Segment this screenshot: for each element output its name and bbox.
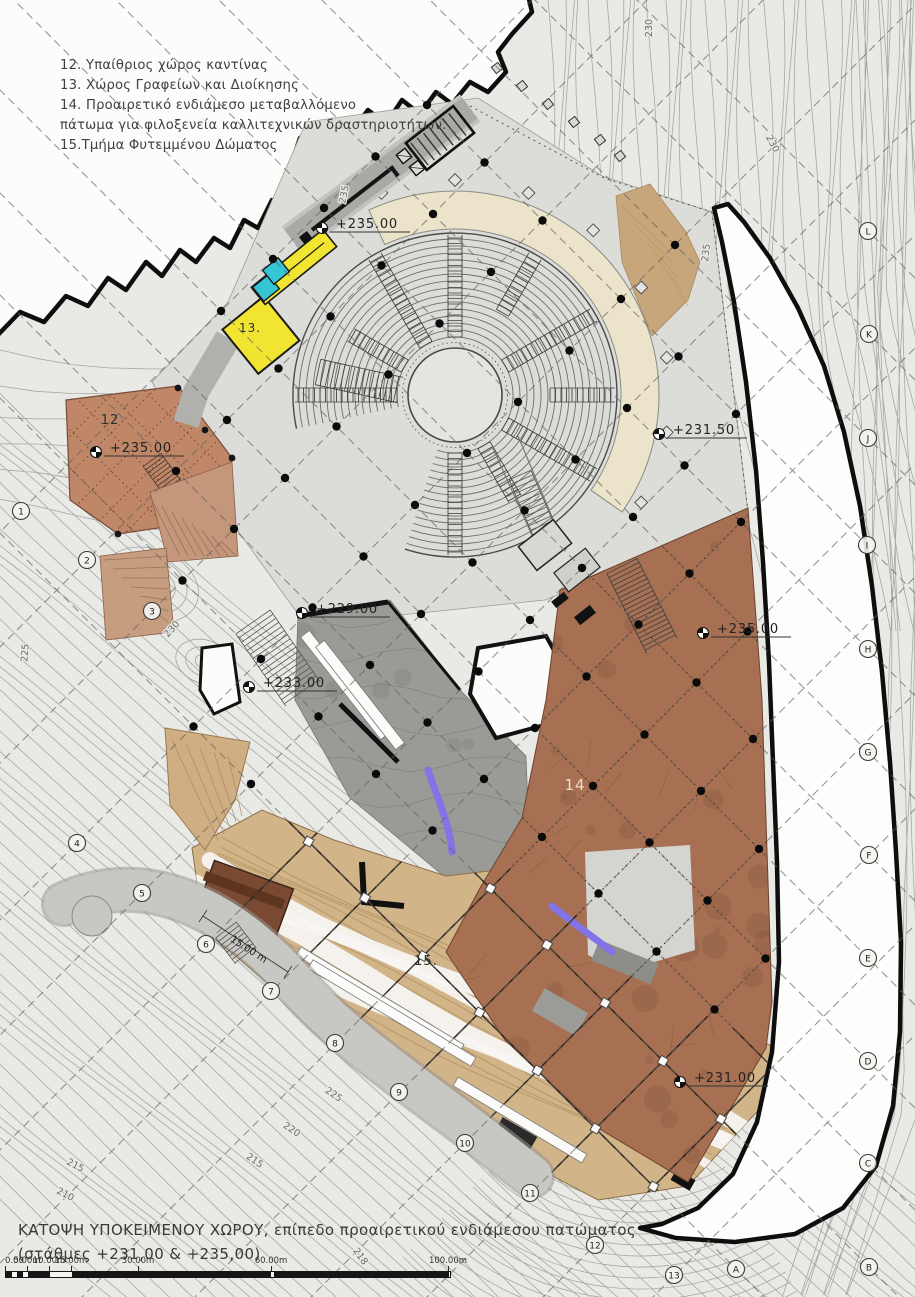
svg-text:+233.00: +233.00 xyxy=(263,676,325,691)
svg-text:2: 2 xyxy=(84,556,90,566)
svg-text:13: 13 xyxy=(668,1271,679,1281)
svg-text:3: 3 xyxy=(149,607,155,617)
svg-text:E: E xyxy=(865,954,871,964)
grid-label-A: A xyxy=(728,1261,745,1278)
legend: 12. Υπαίθριος χώρος καντίνας13. Χώρος Γρ… xyxy=(60,56,447,156)
grid-label-C: C xyxy=(860,1155,877,1172)
contour-label: 235 xyxy=(700,243,713,262)
scale-label-30.00m: 30.00m xyxy=(122,1256,155,1266)
legend-line-4: πάτωμα για φιλοξενεία καλλιτεχνικών δρασ… xyxy=(60,116,447,136)
svg-text:+235.00: +235.00 xyxy=(110,441,172,456)
svg-text:+231.50: +231.50 xyxy=(673,423,735,438)
svg-text:5: 5 xyxy=(139,889,145,899)
grid-label-10: 10 xyxy=(457,1135,474,1152)
title-line1: ΚΑΤΟΨΗ ΥΠΟΚΕΙΜΕΝΟΥ ΧΩΡΟΥ, επίπεδο προαιρ… xyxy=(18,1218,636,1242)
contour-label: 225 xyxy=(19,643,31,662)
svg-text:9: 9 xyxy=(396,1088,402,1098)
svg-text:11: 11 xyxy=(524,1189,535,1199)
svg-text:I: I xyxy=(866,541,869,551)
svg-text:A: A xyxy=(733,1265,740,1275)
grid-label-L: L xyxy=(860,223,877,240)
grid-label-11: 11 xyxy=(522,1185,539,1202)
grid-label-I: I xyxy=(859,537,876,554)
grid-label-4: 4 xyxy=(69,835,86,852)
scale-bar: 0.005.00m10.00m15.00m30.00m60.00m100.00m xyxy=(5,1256,465,1290)
svg-text:D: D xyxy=(865,1057,872,1067)
plan-drawing: +235.00+235.00+231.50+229.00+233.00+235.… xyxy=(0,0,915,1297)
svg-text:7: 7 xyxy=(268,987,274,997)
svg-text:+235.00: +235.00 xyxy=(336,217,398,232)
scale-label-100.00m: 100.00m xyxy=(429,1256,467,1266)
grid-label-D: D xyxy=(860,1053,877,1070)
contour-label: 230 xyxy=(644,19,655,37)
svg-text:G: G xyxy=(865,748,872,758)
svg-text:+229.00: +229.00 xyxy=(316,602,378,617)
svg-text:8: 8 xyxy=(332,1039,338,1049)
grid-label-6: 6 xyxy=(198,936,215,953)
scale-label-60.00m: 60.00m xyxy=(255,1256,288,1266)
grid-label-13: 13 xyxy=(666,1267,683,1284)
legend-line-3: 14. Προαιρετικό ενδιάμεσο μεταβαλλόμενο xyxy=(60,96,447,116)
svg-text:6: 6 xyxy=(203,940,209,950)
grid-label-8: 8 xyxy=(327,1035,344,1052)
grid-label-3: 3 xyxy=(144,603,161,620)
svg-text:4: 4 xyxy=(74,839,80,849)
grid-label-J: J xyxy=(860,430,877,447)
area-label-14: 14 xyxy=(564,776,585,794)
site-plan-canvas: +235.00+235.00+231.50+229.00+233.00+235.… xyxy=(0,0,915,1297)
grid-label-5: 5 xyxy=(134,885,151,902)
grid-label-1: 1 xyxy=(13,503,30,520)
grid-label-7: 7 xyxy=(263,983,280,1000)
grid-label-E: E xyxy=(860,950,877,967)
grid-label-9: 9 xyxy=(391,1084,408,1101)
legend-line-2: 13. Χώρος Γραφείων και Διοίκησης xyxy=(60,76,447,96)
svg-text:+231.00: +231.00 xyxy=(694,1071,756,1086)
grid-label-2: 2 xyxy=(79,552,96,569)
svg-text:10: 10 xyxy=(459,1139,471,1149)
svg-text:L: L xyxy=(865,227,870,237)
area-label-13: 13. xyxy=(239,321,261,335)
svg-text:+235.00: +235.00 xyxy=(717,622,779,637)
grid-label-F: F xyxy=(861,847,878,864)
scale-bar-line xyxy=(5,1271,451,1278)
legend-line-5: 15.Τμήμα Φυτεμμένου Δώματος xyxy=(60,136,447,156)
svg-text:C: C xyxy=(865,1159,871,1169)
area-label-15: 15. xyxy=(414,954,438,969)
legend-line-1: 12. Υπαίθριος χώρος καντίνας xyxy=(60,56,447,76)
grid-label-H: H xyxy=(860,641,877,658)
grid-label-K: K xyxy=(861,326,878,343)
scale-label-15.00m: 15.00m xyxy=(55,1256,88,1266)
svg-text:B: B xyxy=(866,1263,872,1273)
grid-label-G: G xyxy=(860,744,877,761)
svg-text:F: F xyxy=(866,851,871,861)
svg-text:H: H xyxy=(865,645,872,655)
svg-text:1: 1 xyxy=(18,507,24,517)
grid-label-B: B xyxy=(861,1259,878,1276)
svg-text:J: J xyxy=(866,434,870,444)
area-label-12: 12 xyxy=(101,413,120,428)
